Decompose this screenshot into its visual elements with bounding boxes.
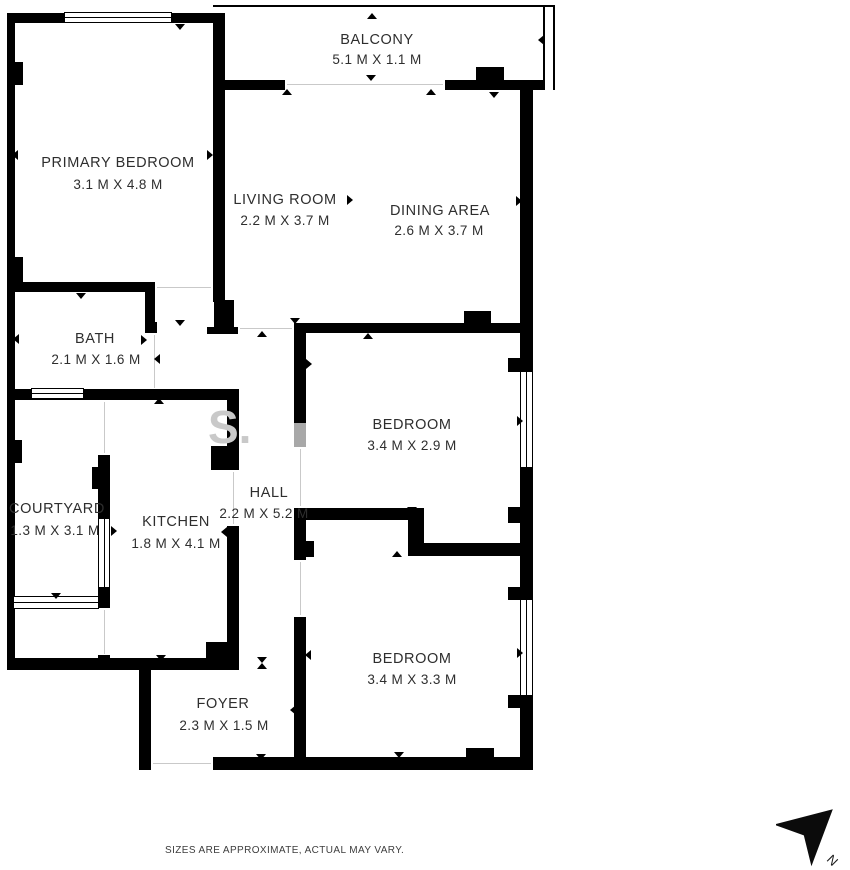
room-label-kitchen: KITCHEN bbox=[142, 514, 210, 530]
door-jamb bbox=[153, 763, 211, 764]
wall-segment bbox=[445, 80, 545, 90]
room-dims-dining-area: 2.6 M X 3.7 M bbox=[394, 223, 483, 238]
balcony-inner-line bbox=[543, 6, 545, 90]
room-label-dining-area: DINING AREA bbox=[390, 203, 490, 219]
dim-tick-icon bbox=[154, 398, 164, 404]
room-dims-courtyard: 1.3 M X 3.1 M bbox=[10, 523, 99, 538]
wall-segment bbox=[7, 658, 239, 670]
room-dims-bedroom-2: 3.4 M X 3.3 M bbox=[367, 672, 456, 687]
wall-segment bbox=[294, 323, 306, 423]
wall-segment bbox=[98, 655, 110, 670]
dim-tick-icon bbox=[111, 526, 117, 536]
wall-segment bbox=[139, 659, 151, 770]
dim-tick-icon bbox=[282, 89, 292, 95]
dim-tick-icon bbox=[538, 35, 544, 45]
room-label-bath: BATH bbox=[75, 331, 115, 347]
dim-tick-icon bbox=[517, 648, 523, 658]
dim-tick-icon bbox=[13, 334, 19, 344]
wall-pillar bbox=[466, 748, 494, 757]
wall-pillar bbox=[306, 541, 314, 557]
dim-tick-icon bbox=[154, 354, 160, 364]
room-dims-living-room: 2.2 M X 3.7 M bbox=[240, 213, 329, 228]
dim-tick-icon bbox=[218, 33, 224, 43]
dim-tick-icon bbox=[230, 453, 236, 463]
wall-pillar bbox=[15, 257, 23, 283]
wall-stub bbox=[508, 507, 520, 523]
dim-tick-icon bbox=[305, 650, 311, 660]
dim-tick-icon bbox=[392, 551, 402, 557]
dim-tick-icon bbox=[156, 655, 166, 661]
dim-tick-icon bbox=[76, 293, 86, 299]
wall-pillar bbox=[214, 300, 234, 327]
wall-segment bbox=[408, 543, 520, 556]
dim-tick-icon bbox=[12, 150, 18, 160]
wall-foot bbox=[207, 327, 238, 334]
wall-stub bbox=[508, 358, 520, 372]
dim-tick-icon bbox=[257, 331, 267, 337]
dim-tick-icon bbox=[256, 754, 266, 760]
door-jamb bbox=[104, 402, 105, 453]
window bbox=[31, 388, 84, 399]
wall-segment bbox=[294, 617, 306, 757]
dim-tick-icon bbox=[175, 24, 185, 30]
dim-tick-icon bbox=[363, 333, 373, 339]
dim-tick-icon bbox=[347, 195, 353, 205]
room-label-foyer: FOYER bbox=[197, 696, 250, 712]
dim-tick-icon bbox=[290, 705, 296, 715]
north-arrow-icon: N bbox=[776, 796, 846, 870]
wall-pillar bbox=[476, 67, 504, 80]
dim-tick-icon bbox=[426, 89, 436, 95]
dim-tick-icon bbox=[306, 359, 312, 369]
wall-pillar bbox=[92, 467, 98, 489]
dim-tick-icon bbox=[394, 752, 404, 758]
wall-pillar bbox=[15, 62, 23, 85]
room-label-bedroom-1: BEDROOM bbox=[372, 417, 451, 433]
room-dims-foyer: 2.3 M X 1.5 M bbox=[179, 718, 268, 733]
room-dims-bedroom-1: 3.4 M X 2.9 M bbox=[367, 438, 456, 453]
dim-tick-icon bbox=[290, 318, 300, 324]
dim-tick-icon bbox=[257, 663, 267, 669]
wall-segment bbox=[15, 282, 153, 292]
room-dims-balcony: 5.1 M X 1.1 M bbox=[332, 52, 421, 67]
wall-segment bbox=[294, 508, 424, 520]
room-label-hall: HALL bbox=[250, 485, 289, 501]
window bbox=[64, 12, 172, 23]
dim-tick-icon bbox=[141, 335, 147, 345]
door-jamb bbox=[300, 562, 301, 615]
room-label-bedroom-2: BEDROOM bbox=[372, 651, 451, 667]
disclaimer-text: SIZES ARE APPROXIMATE, ACTUAL MAY VARY. bbox=[165, 845, 404, 856]
dim-tick-icon bbox=[207, 150, 213, 160]
dim-tick-icon bbox=[516, 196, 522, 206]
room-label-living-room: LIVING ROOM bbox=[233, 192, 336, 208]
room-label-primary-bedroom: PRIMARY BEDROOM bbox=[41, 155, 195, 171]
wall-pillar bbox=[464, 311, 491, 323]
wall-pillar bbox=[15, 440, 22, 463]
wall-stub bbox=[508, 695, 520, 708]
dim-tick-icon bbox=[489, 92, 499, 98]
wall-segment bbox=[227, 526, 239, 658]
dim-tick-icon bbox=[367, 13, 377, 19]
room-dims-bath: 2.1 M X 1.6 M bbox=[51, 352, 140, 367]
door-jamb bbox=[104, 610, 105, 654]
dim-tick-icon bbox=[517, 416, 523, 426]
room-label-courtyard: COURTYARD bbox=[9, 501, 105, 517]
wall-segment bbox=[98, 588, 110, 608]
dim-tick-icon bbox=[221, 527, 227, 537]
floor-plan: PRIMARY BEDROOM 3.1 M X 4.8 M BALCONY 5.… bbox=[0, 0, 850, 870]
room-label-balcony: BALCONY bbox=[340, 32, 414, 48]
dim-tick-icon bbox=[51, 593, 61, 599]
room-dims-hall: 2.2 M X 5.2 M bbox=[219, 506, 308, 521]
window bbox=[98, 518, 110, 588]
watermark: S. bbox=[208, 404, 251, 450]
dim-tick-icon bbox=[175, 320, 185, 326]
wall-segment-faded bbox=[294, 423, 306, 447]
dim-tick-icon bbox=[145, 698, 151, 708]
wall-segment bbox=[213, 13, 225, 302]
north-label: N bbox=[824, 852, 841, 869]
door-jamb bbox=[287, 84, 443, 85]
door-jamb bbox=[300, 449, 301, 506]
dim-tick-icon bbox=[407, 507, 417, 513]
wall-foot bbox=[145, 322, 157, 333]
room-dims-kitchen: 1.8 M X 4.1 M bbox=[131, 536, 220, 551]
door-jamb bbox=[157, 287, 211, 288]
dim-tick-icon bbox=[408, 324, 418, 330]
wall-stub bbox=[508, 587, 520, 600]
room-dims-primary-bedroom: 3.1 M X 4.8 M bbox=[73, 177, 162, 192]
dim-tick-icon bbox=[366, 75, 376, 81]
dim-tick-icon bbox=[217, 195, 223, 205]
door-jamb bbox=[240, 328, 292, 329]
